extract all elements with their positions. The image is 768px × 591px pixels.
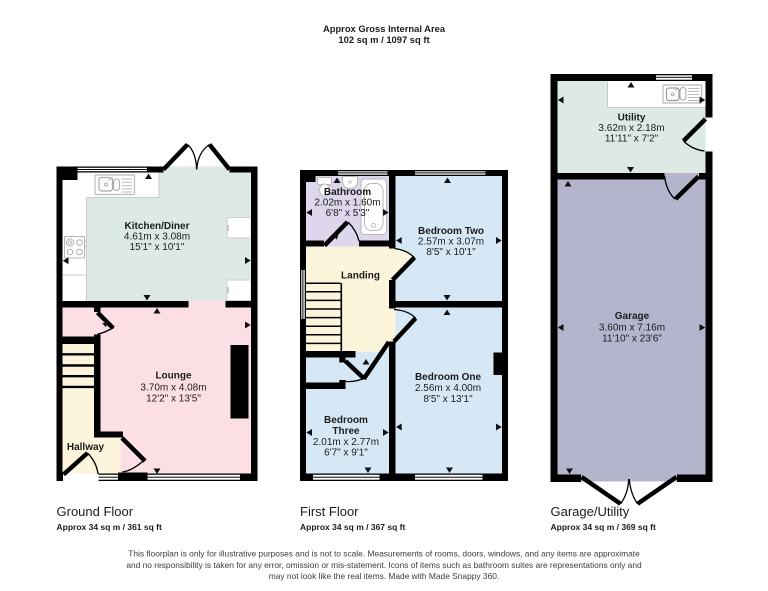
- svg-text:Garage/Utility: Garage/Utility: [551, 504, 630, 519]
- svg-text:Three: Three: [332, 426, 360, 437]
- svg-text:11'10" x 23'6": 11'10" x 23'6": [602, 334, 662, 345]
- svg-text:4.61m x 3.08m: 4.61m x 3.08m: [124, 232, 190, 243]
- svg-text:First Floor: First Floor: [300, 504, 359, 519]
- svg-text:Kitchen/Diner: Kitchen/Diner: [124, 221, 189, 232]
- svg-text:Ground Floor: Ground Floor: [57, 504, 134, 519]
- svg-text:3.62m x 2.18m: 3.62m x 2.18m: [598, 123, 664, 134]
- svg-text:Bedroom Two: Bedroom Two: [418, 226, 484, 237]
- svg-text:and no responsibility is taken: and no responsibility is taken for any e…: [126, 560, 642, 570]
- svg-text:6'8" x 5'3": 6'8" x 5'3": [326, 208, 370, 219]
- svg-text:2.01m x 2.77m: 2.01m x 2.77m: [313, 437, 379, 448]
- svg-text:Approx 34 sq m / 367 sq ft: Approx 34 sq m / 367 sq ft: [300, 522, 406, 532]
- svg-text:2.56m x 4.00m: 2.56m x 4.00m: [415, 383, 481, 394]
- svg-text:8'5" x 13'1": 8'5" x 13'1": [423, 394, 473, 405]
- svg-text:Approx Gross Internal Area: Approx Gross Internal Area: [323, 23, 446, 34]
- svg-text:Utility: Utility: [618, 113, 646, 124]
- svg-text:Approx 34 sq m / 361 sq ft: Approx 34 sq m / 361 sq ft: [57, 522, 163, 532]
- svg-text:Bedroom One: Bedroom One: [415, 372, 482, 383]
- svg-text:Landing: Landing: [341, 271, 380, 282]
- svg-text:may not look like the real ite: may not look like the real items. Made w…: [269, 571, 499, 581]
- svg-text:Approx 34 sq m / 369 sq ft: Approx 34 sq m / 369 sq ft: [551, 522, 657, 532]
- svg-text:11'11" x 7'2": 11'11" x 7'2": [605, 134, 659, 145]
- svg-text:12'2" x 13'5": 12'2" x 13'5": [146, 394, 201, 405]
- svg-text:Garage: Garage: [615, 311, 650, 322]
- svg-text:Bathroom: Bathroom: [324, 187, 371, 198]
- svg-text:2.57m x 3.07m: 2.57m x 3.07m: [418, 237, 484, 248]
- svg-text:This floorplan is only for ill: This floorplan is only for illustrative …: [128, 549, 640, 559]
- svg-text:15'1" x 10'1": 15'1" x 10'1": [130, 242, 185, 253]
- svg-text:Bedroom: Bedroom: [324, 415, 368, 426]
- svg-text:6'7" x 9'1": 6'7" x 9'1": [324, 448, 368, 459]
- svg-text:Hallway: Hallway: [67, 442, 105, 453]
- svg-text:2.02m x 1.60m: 2.02m x 1.60m: [314, 198, 380, 209]
- svg-text:8'5" x 10'1": 8'5" x 10'1": [426, 247, 476, 258]
- svg-text:102 sq m / 1097 sq ft: 102 sq m / 1097 sq ft: [338, 34, 429, 45]
- svg-text:3.70m x 4.08m: 3.70m x 4.08m: [140, 383, 206, 394]
- svg-text:Lounge: Lounge: [155, 371, 192, 382]
- svg-text:3.60m x 7.16m: 3.60m x 7.16m: [599, 323, 665, 334]
